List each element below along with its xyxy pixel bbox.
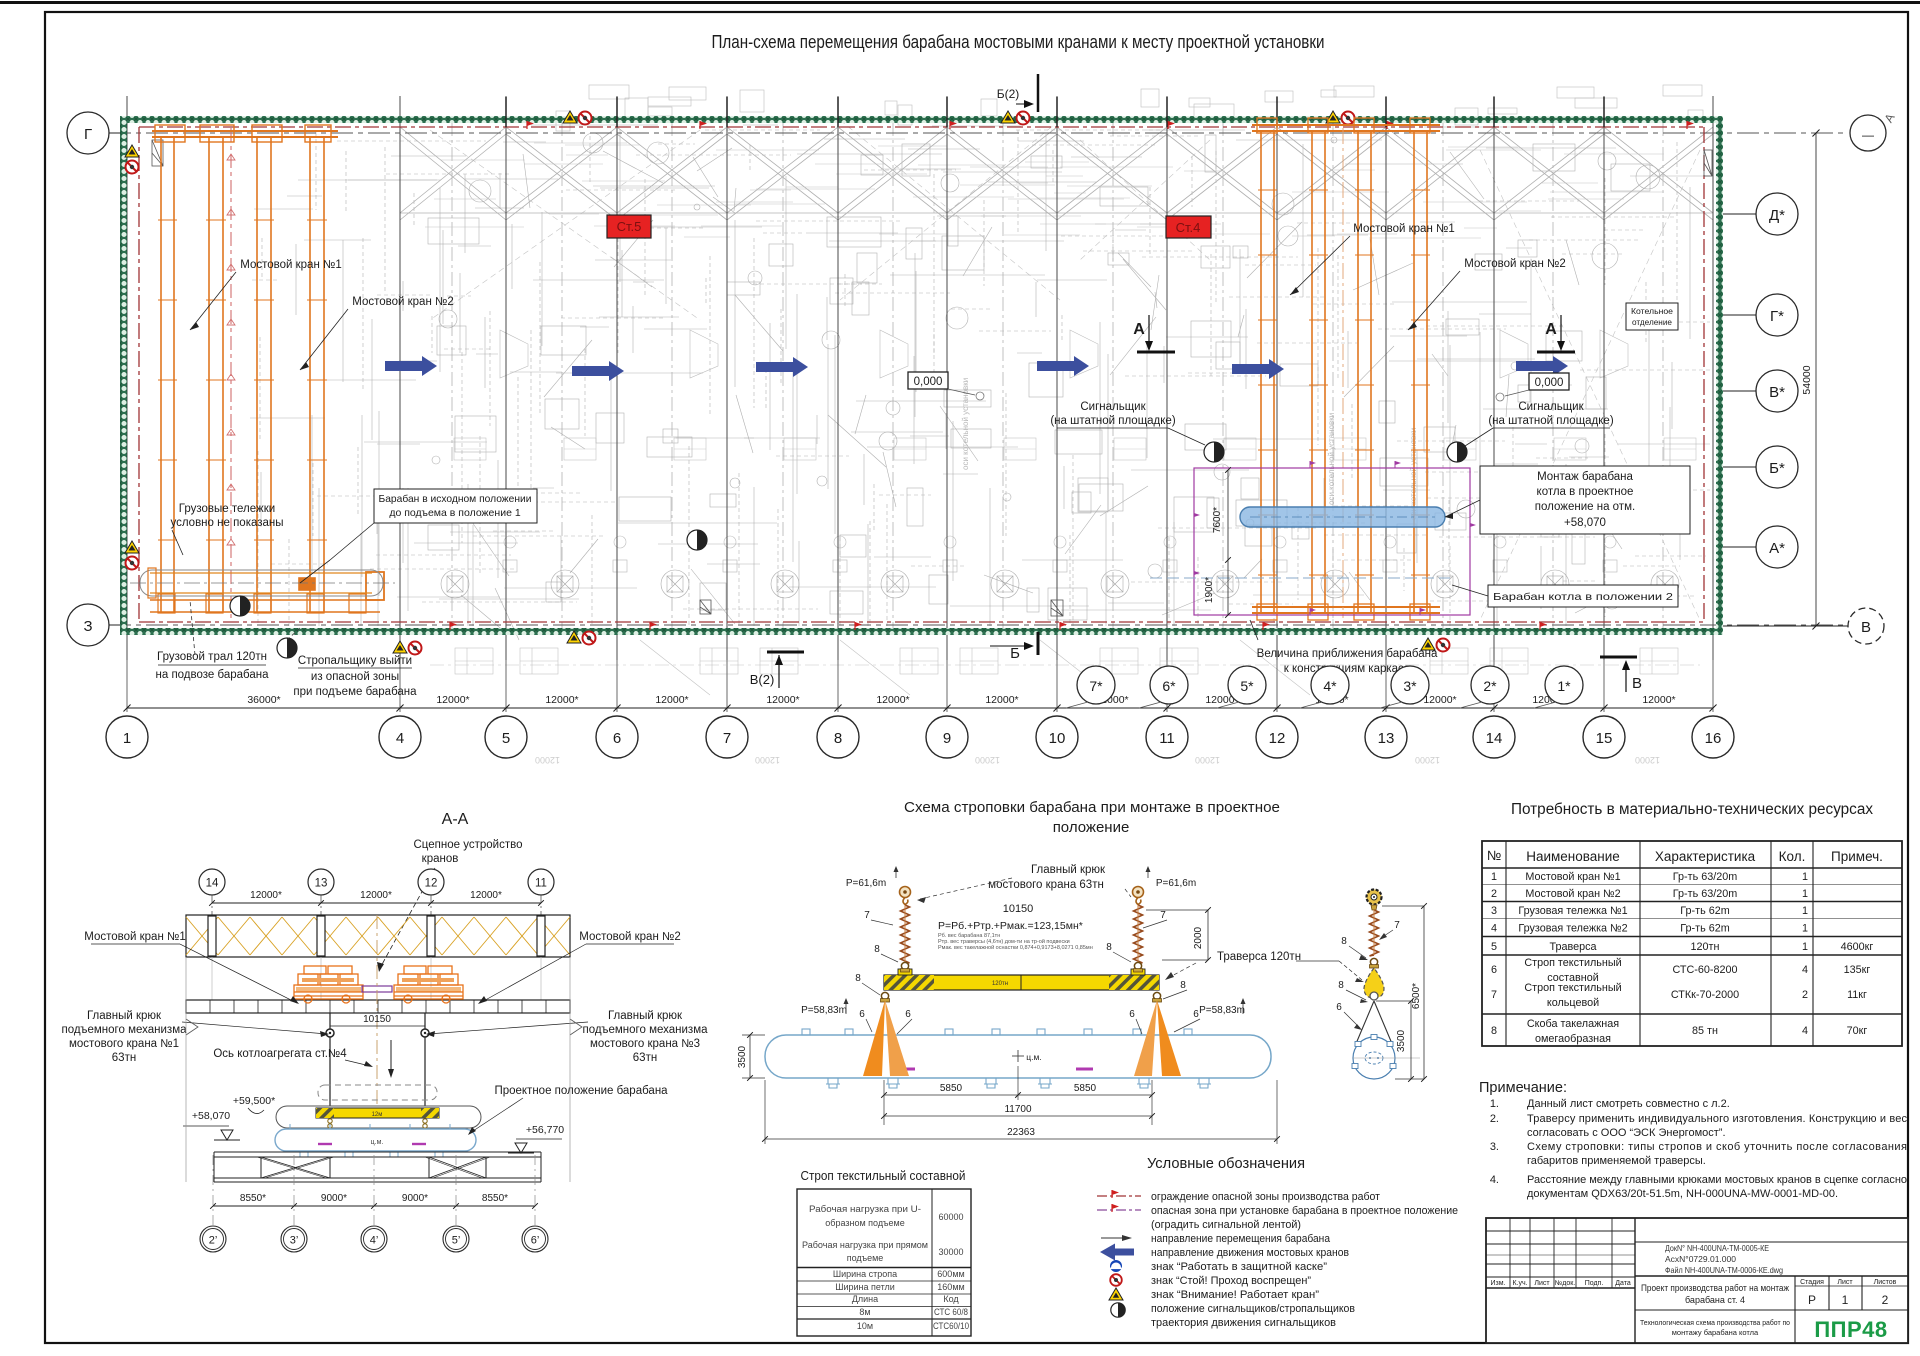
svg-text:Г*: Г* [1770,308,1784,325]
svg-text:Рабочая нагрузка при U-: Рабочая нагрузка при U- [809,1204,921,1214]
svg-text:знак “Работать в защитной каск: знак “Работать в защитной каске” [1151,1261,1327,1273]
svg-text:7600*: 7600* [1212,507,1223,533]
svg-text:6: 6 [905,1009,911,1020]
svg-text:2.: 2. [1490,1113,1499,1125]
svg-text:Pмак. вес такелажной оснастки: Pмак. вес такелажной оснастки 0,874+0,91… [938,944,1093,951]
svg-text:6*: 6* [1162,678,1176,694]
svg-text:Траверсу применить индивидуаль: Траверсу применить индивидуального изгот… [1527,1113,1908,1125]
svg-text:7: 7 [864,910,870,921]
svg-text:Сцепное устройство: Сцепное устройство [414,839,523,851]
svg-text:63тн: 63тн [633,1052,657,1064]
svg-text:Схему строповки: типы стропов: Схему строповки: типы стропов и скоб уто… [1527,1141,1907,1153]
svg-text:4’: 4’ [370,1235,379,1247]
svg-text:+56,770: +56,770 [526,1124,564,1136]
svg-text:3.: 3. [1490,1141,1499,1153]
svg-text:Примечание:: Примечание: [1479,1079,1567,1096]
svg-text:Лист: Лист [1837,1279,1853,1286]
svg-text:15: 15 [1596,730,1613,747]
svg-text:Мостовой кран №1: Мостовой кран №1 [240,259,341,271]
svg-text:3500: 3500 [1396,1029,1407,1052]
svg-text:З: З [83,618,92,635]
svg-text:6’: 6’ [531,1235,540,1247]
svg-text:Главный крюк: Главный крюк [608,1010,683,1022]
svg-text:А-А: А-А [442,811,469,828]
svg-text:1: 1 [1491,871,1497,883]
svg-text:Мостовой кран №1: Мостовой кран №1 [1525,871,1620,883]
svg-text:6: 6 [859,1009,865,1020]
svg-text:5’: 5’ [452,1235,461,1247]
svg-text:№док.: №док. [1555,1280,1576,1287]
svg-text:В: В [1861,619,1871,636]
svg-text:ДокN° NH-400UNA-ТМ-0005-КЕ: ДокN° NH-400UNA-ТМ-0005-КЕ [1665,1243,1769,1253]
svg-text:монтажу барабана котла: монтажу барабана котла [1672,1328,1759,1337]
svg-text:12000*: 12000* [545,694,578,706]
svg-text:3*: 3* [1403,678,1417,694]
svg-text:3’: 3’ [290,1235,299,1247]
svg-text:В(2): В(2) [750,672,775,687]
svg-text:—: — [1862,128,1874,142]
svg-text:12000*: 12000* [250,890,282,901]
svg-text:2000: 2000 [1193,926,1204,949]
svg-text:Барабан в исходном положении: Барабан в исходном положении [379,493,532,505]
svg-text:54000: 54000 [1801,365,1813,394]
svg-text:2*: 2* [1483,678,1497,694]
svg-text:Рабочая нагрузка при прямом: Рабочая нагрузка при прямом [802,1240,928,1250]
svg-text:положение: положение [1053,819,1130,836]
svg-text:(на штатной площадке): (на штатной площадке) [1050,415,1175,427]
svg-text:согласовать с ООО “ЭСК Энергом: согласовать с ООО “ЭСК Энергомост”. [1527,1127,1726,1139]
svg-text:9000*: 9000* [402,1193,428,1204]
svg-text:образном подъеме: образном подъеме [825,1218,904,1228]
svg-text:А: А [1133,321,1145,338]
svg-text:9: 9 [943,730,951,747]
svg-text:1: 1 [1802,941,1808,953]
svg-text:4*: 4* [1323,678,1337,694]
svg-text:7: 7 [1394,920,1400,931]
svg-text:12000*: 12000* [436,694,469,706]
svg-text:кольцевой: кольцевой [1547,997,1599,1009]
svg-text:12000: 12000 [1635,755,1660,765]
svg-text:3: 3 [1491,905,1497,917]
svg-text:8: 8 [855,973,861,984]
svg-text:Подп.: Подп. [1585,1280,1604,1287]
svg-text:7: 7 [1160,910,1166,921]
svg-text:1: 1 [123,730,131,747]
svg-text:13: 13 [315,878,328,890]
svg-text:Б*: Б* [1769,460,1785,477]
svg-text:условно не показаны: условно не показаны [170,517,283,529]
svg-text:10150: 10150 [1003,903,1034,915]
svg-text:4: 4 [1491,923,1497,935]
svg-text:12000*: 12000* [1423,694,1456,706]
svg-text:8: 8 [1106,942,1112,953]
svg-text:+58,070: +58,070 [192,1110,230,1122]
svg-text:Мостовой кран №2: Мостовой кран №2 [579,931,680,943]
svg-text:12000*: 12000* [655,694,688,706]
svg-text:12000*: 12000* [985,694,1018,706]
svg-text:Характеристика: Характеристика [1655,849,1756,864]
svg-text:8: 8 [834,730,842,747]
svg-text:4: 4 [1802,964,1808,976]
svg-text:опасная зона при установке бар: опасная зона при установке барабана в пр… [1151,1205,1458,1217]
svg-text:Гр-ть 62m: Гр-ть 62m [1680,905,1729,917]
svg-text:к конструкциям каркаса: к конструкциям каркаса [1284,663,1411,675]
svg-text:8: 8 [874,944,880,955]
svg-text:Траверса: Траверса [1549,941,1596,953]
svg-text:36000*: 36000* [247,694,280,706]
svg-text:7: 7 [1491,989,1497,1001]
svg-text:Технологическая схема производ: Технологическая схема производства работ… [1640,1318,1790,1327]
svg-text:12000*: 12000* [1642,694,1675,706]
svg-text:Потребность в материально-техн: Потребность в материально-технических ре… [1511,801,1873,818]
svg-text:Данный лист смотреть совместно: Данный лист смотреть совместно с л.2. [1527,1098,1730,1110]
svg-text:мостового крана №1: мостового крана №1 [69,1038,179,1050]
svg-text:7: 7 [723,730,731,747]
svg-text:+59,500*: +59,500* [233,1095,275,1107]
svg-text:ц.м.: ц.м. [1026,1052,1041,1062]
svg-text:В*: В* [1769,384,1785,401]
svg-text:8: 8 [1180,980,1186,991]
svg-text:Стадия: Стадия [1800,1279,1824,1286]
svg-text:12: 12 [1269,730,1286,747]
svg-text:Код: Код [943,1294,959,1304]
svg-text:Изм.: Изм. [1491,1280,1506,1287]
svg-text:Сигнальщик: Сигнальщик [1080,401,1146,413]
svg-text:4: 4 [1802,1025,1808,1037]
svg-text:16: 16 [1705,730,1722,747]
svg-text:знак “Стой! Проход воспрещен”: знак “Стой! Проход воспрещен” [1151,1275,1311,1287]
svg-text:Ширина стропа: Ширина стропа [833,1269,897,1279]
svg-text:Грузовой трал 120тн: Грузовой трал 120тн [157,651,267,663]
svg-text:Ст.5: Ст.5 [617,219,642,234]
svg-text:12000: 12000 [1195,755,1220,765]
svg-text:P=58,83m: P=58,83m [1199,1005,1245,1016]
svg-text:6: 6 [1491,964,1497,976]
svg-text:омегаобразная: омегаобразная [1535,1033,1611,1045]
svg-text:при подъеме барабана: при подъеме барабана [293,686,417,698]
svg-text:Pтр. вес траверсы (4,6тн) дом-: Pтр. вес траверсы (4,6тн) дом-ти на тр-о… [938,938,1070,945]
svg-text:14: 14 [1486,730,1503,747]
svg-text:Длина: Длина [852,1294,878,1304]
svg-text:5: 5 [502,730,510,747]
svg-text:2: 2 [1802,989,1808,1001]
svg-text:P=58,83m: P=58,83m [801,1005,847,1016]
svg-text:К.уч.: К.уч. [1512,1280,1527,1287]
svg-text:Гр-ть 63/20m: Гр-ть 63/20m [1673,888,1737,900]
svg-text:3500: 3500 [737,1045,748,1068]
svg-text:12000*: 12000* [470,890,502,901]
svg-text:63тн: 63тн [112,1052,136,1064]
svg-text:Главный крюк: Главный крюк [87,1010,162,1022]
svg-text:документам QDX63/20t-51.5m, NH: документам QDX63/20t-51.5m, NH-000UNA-MW… [1527,1188,1838,1200]
svg-text:8550*: 8550* [240,1193,266,1204]
svg-text:P=61,6m: P=61,6m [846,878,886,889]
svg-text:70кг: 70кг [1847,1025,1868,1037]
svg-text:кранов: кранов [422,853,459,865]
svg-text:(на штатной площадке): (на штатной площадке) [1488,415,1613,427]
svg-text:Листов: Листов [1874,1279,1897,1286]
svg-text:Скоба такелажная: Скоба такелажная [1527,1018,1619,1030]
svg-text:12000: 12000 [975,755,1000,765]
svg-text:30000: 30000 [938,1247,963,1257]
svg-text:знак “Внимание! Работает кран”: знак “Внимание! Работает кран” [1151,1289,1319,1301]
svg-text:14: 14 [206,878,219,890]
svg-text:Мостовой кран №2: Мостовой кран №2 [352,296,453,308]
svg-text:6500*: 6500* [1411,983,1422,1009]
svg-text:12000: 12000 [535,755,560,765]
svg-text:Грузовая тележка №1: Грузовая тележка №1 [1518,905,1627,917]
svg-text:Стропальщику выйти: Стропальщику выйти [298,655,412,667]
svg-text:(оградить сигнальной лентой): (оградить сигнальной лентой) [1151,1219,1301,1231]
svg-text:Котельное: Котельное [1631,306,1673,316]
svg-text:12000*: 12000* [766,694,799,706]
svg-text:120тн: 120тн [1691,941,1720,953]
svg-text:Строп текстильный: Строп текстильный [1524,982,1621,994]
svg-text:5*: 5* [1240,678,1254,694]
svg-text:8: 8 [1491,1025,1497,1037]
svg-text:8: 8 [1341,936,1347,947]
svg-text:траектория движения сигнальщик: траектория движения сигнальщиков [1151,1317,1336,1329]
svg-text:+58,070: +58,070 [1564,517,1606,529]
svg-text:1: 1 [1842,1293,1849,1307]
svg-text:11кг: 11кг [1847,989,1867,1001]
svg-text:№: № [1487,848,1501,863]
svg-text:5: 5 [1491,941,1497,953]
svg-text:11: 11 [535,878,547,890]
svg-text:1.: 1. [1490,1098,1499,1110]
svg-text:10150: 10150 [363,1014,391,1025]
svg-text:подъемного механизма: подъемного механизма [61,1024,187,1036]
svg-text:9000*: 9000* [321,1193,347,1204]
svg-text:мостового крана 63тн: мостового крана 63тн [988,879,1104,891]
svg-text:Р: Р [1808,1293,1816,1307]
svg-text:до подъема в положение 1: до подъема в положение 1 [389,507,520,519]
svg-text:Траверса 120тн: Траверса 120тн [1217,951,1301,963]
svg-text:1*: 1* [1557,678,1571,694]
svg-text:Мостовой кран №2: Мостовой кран №2 [1464,258,1565,270]
svg-text:600мм: 600мм [937,1269,964,1279]
svg-text:Гр-ть 63/20m: Гр-ть 63/20m [1673,871,1737,883]
svg-text:АсхN°0729.01.000: АсхN°0729.01.000 [1665,1254,1736,1264]
svg-text:Строп текстильный: Строп текстильный [1524,957,1621,969]
svg-text:8550*: 8550* [482,1193,508,1204]
svg-text:барабана ст. 4: барабана ст. 4 [1685,1295,1745,1305]
svg-text:Расстояние между главными крюк: Расстояние между главными крюками мостов… [1527,1174,1907,1186]
svg-text:Мостовой кран №1: Мостовой кран №1 [84,931,185,943]
svg-text:Б(2): Б(2) [997,87,1020,101]
svg-text:12м: 12м [372,1112,383,1118]
svg-text:СТС60/10: СТС60/10 [933,1321,969,1331]
svg-text:Грузовые тележки: Грузовые тележки [179,503,275,515]
svg-text:СТС-60-8200: СТС-60-8200 [1672,964,1737,976]
svg-text:на подвозе барабана: на подвозе барабана [156,669,270,681]
svg-text:ППР48: ППР48 [1814,1317,1887,1342]
svg-text:22363: 22363 [1007,1127,1035,1138]
svg-text:А: А [1545,321,1557,338]
svg-text:Примеч.: Примеч. [1831,849,1883,864]
svg-text:4: 4 [396,730,404,747]
svg-text:Условные обозначения: Условные обозначения [1147,1155,1305,1172]
svg-text:Д*: Д* [1769,207,1785,224]
svg-text:1: 1 [1802,871,1808,883]
svg-text:мостового крана №3: мостового крана №3 [590,1038,700,1050]
svg-text:85 тн: 85 тн [1692,1025,1718,1037]
svg-text:Б: Б [1010,645,1020,662]
svg-text:Грузовая тележка №2: Грузовая тележка №2 [1518,923,1627,935]
svg-text:положение на отм.: положение на отм. [1535,501,1635,513]
svg-text:2: 2 [1491,888,1497,900]
svg-text:10м: 10м [857,1321,873,1331]
svg-text:ограждение опасной зоны произв: ограждение опасной зоны производства раб… [1151,1191,1380,1203]
svg-text:Главный крюк: Главный крюк [1031,864,1106,876]
svg-text:Проектное положение барабана: Проектное положение барабана [494,1085,668,1097]
svg-text:оси котельной установки: оси котельной установки [1327,413,1336,505]
svg-text:2: 2 [1882,1293,1889,1307]
svg-text:4.: 4. [1490,1174,1499,1186]
svg-text:Мостовой кран №2: Мостовой кран №2 [1525,888,1620,900]
svg-text:7*: 7* [1089,678,1103,694]
svg-text:подъеме: подъеме [847,1253,884,1263]
svg-text:А*: А* [1769,540,1785,557]
svg-text:P=61,6m: P=61,6m [1156,878,1196,889]
svg-text:1900*: 1900* [1204,577,1215,603]
svg-text:Барабан котла в положении 2: Барабан котла в положении 2 [1493,591,1673,603]
svg-text:Ширина петли: Ширина петли [835,1282,895,1292]
svg-text:В: В [1632,675,1642,692]
svg-text:12000: 12000 [755,755,780,765]
svg-text:4600кг: 4600кг [1841,941,1874,953]
svg-text:СТС 60/8: СТС 60/8 [934,1307,968,1317]
svg-text:11700: 11700 [1004,1104,1032,1115]
svg-text:направление движения мостовых: направление движения мостовых кранов [1151,1247,1349,1259]
svg-text:2’: 2’ [209,1235,218,1247]
svg-text:6: 6 [1129,1009,1135,1020]
svg-text:1: 1 [1802,905,1808,917]
svg-text:1: 1 [1802,888,1808,900]
svg-text:160мм: 160мм [937,1282,964,1292]
svg-text:0,000: 0,000 [1535,377,1564,389]
svg-text:10: 10 [1049,730,1066,747]
svg-text:8м: 8м [859,1307,870,1317]
svg-text:Сигнальщик: Сигнальщик [1518,401,1584,413]
svg-text:Кол.: Кол. [1779,849,1806,864]
svg-text:60000: 60000 [938,1212,963,1222]
svg-text:12: 12 [425,878,438,890]
svg-text:оси котельной установки: оси котельной установки [961,378,970,470]
svg-text:План-схема перемещения барабан: План-схема перемещения барабана мостовым… [712,32,1325,52]
svg-text:отделение: отделение [1632,317,1672,327]
svg-text:0,000: 0,000 [914,376,943,388]
svg-text:Монтаж барабана: Монтаж барабана [1537,471,1633,483]
svg-text:Строп текстильный составной: Строп текстильный составной [801,1169,966,1183]
svg-text:5850: 5850 [1074,1083,1097,1094]
svg-text:Величина приближения барабана: Величина приближения барабана [1257,648,1438,660]
svg-text:Наименование: Наименование [1526,849,1620,864]
svg-text:Файл NH-400UNA-TM-0006-КЕ.dwg: Файл NH-400UNA-TM-0006-КЕ.dwg [1665,1265,1783,1275]
svg-text:Проект производства работ на м: Проект производства работ на монтаж [1641,1283,1789,1293]
svg-text:12000: 12000 [1415,755,1440,765]
svg-text:11: 11 [1159,730,1175,747]
svg-text:Мостовой кран №1: Мостовой кран №1 [1353,223,1454,235]
svg-text:Ось котлоагрегата ст.№4: Ось котлоагрегата ст.№4 [213,1048,347,1060]
svg-text:5850: 5850 [940,1083,963,1094]
svg-text:Лист: Лист [1534,1280,1550,1287]
svg-text:котла в проектное: котла в проектное [1537,486,1634,498]
svg-text:8: 8 [1338,980,1344,991]
svg-text:положение сигнальщиков/стропал: положение сигнальщиков/стропальщиков [1151,1303,1355,1315]
svg-text:13: 13 [1378,730,1395,747]
svg-text:Гр-ть 62m: Гр-ть 62m [1680,923,1729,935]
svg-text:12000*: 12000* [876,694,909,706]
svg-text:120тн: 120тн [992,981,1008,987]
svg-text:СТКк-70-2000: СТКк-70-2000 [1671,989,1739,1001]
svg-text:габаритов применяемой траверсы: габаритов применяемой траверсы. [1527,1155,1706,1167]
svg-text:6: 6 [613,730,621,747]
svg-text:Дата: Дата [1615,1280,1631,1287]
svg-text:ц.м.: ц.м. [371,1139,384,1146]
svg-text:Схема строповки барабана при м: Схема строповки барабана при монтаже в п… [904,799,1280,816]
svg-text:135кг: 135кг [1844,964,1871,976]
svg-text:направление перемещения бараба: направление перемещения барабана [1151,1233,1331,1245]
svg-text:P=Pб.+Pтр.+Pмак.=123,15мн*: P=Pб.+Pтр.+Pмак.=123,15мн* [938,920,1083,932]
svg-text:подъемного механизма: подъемного механизма [582,1024,708,1036]
svg-text:Ст.4: Ст.4 [1176,220,1201,235]
svg-text:1: 1 [1802,923,1808,935]
svg-text:6: 6 [1336,1002,1342,1013]
svg-text:Г: Г [84,126,92,143]
svg-text:12000*: 12000* [360,890,392,901]
svg-text:из опасной зоны: из опасной зоны [311,671,399,683]
